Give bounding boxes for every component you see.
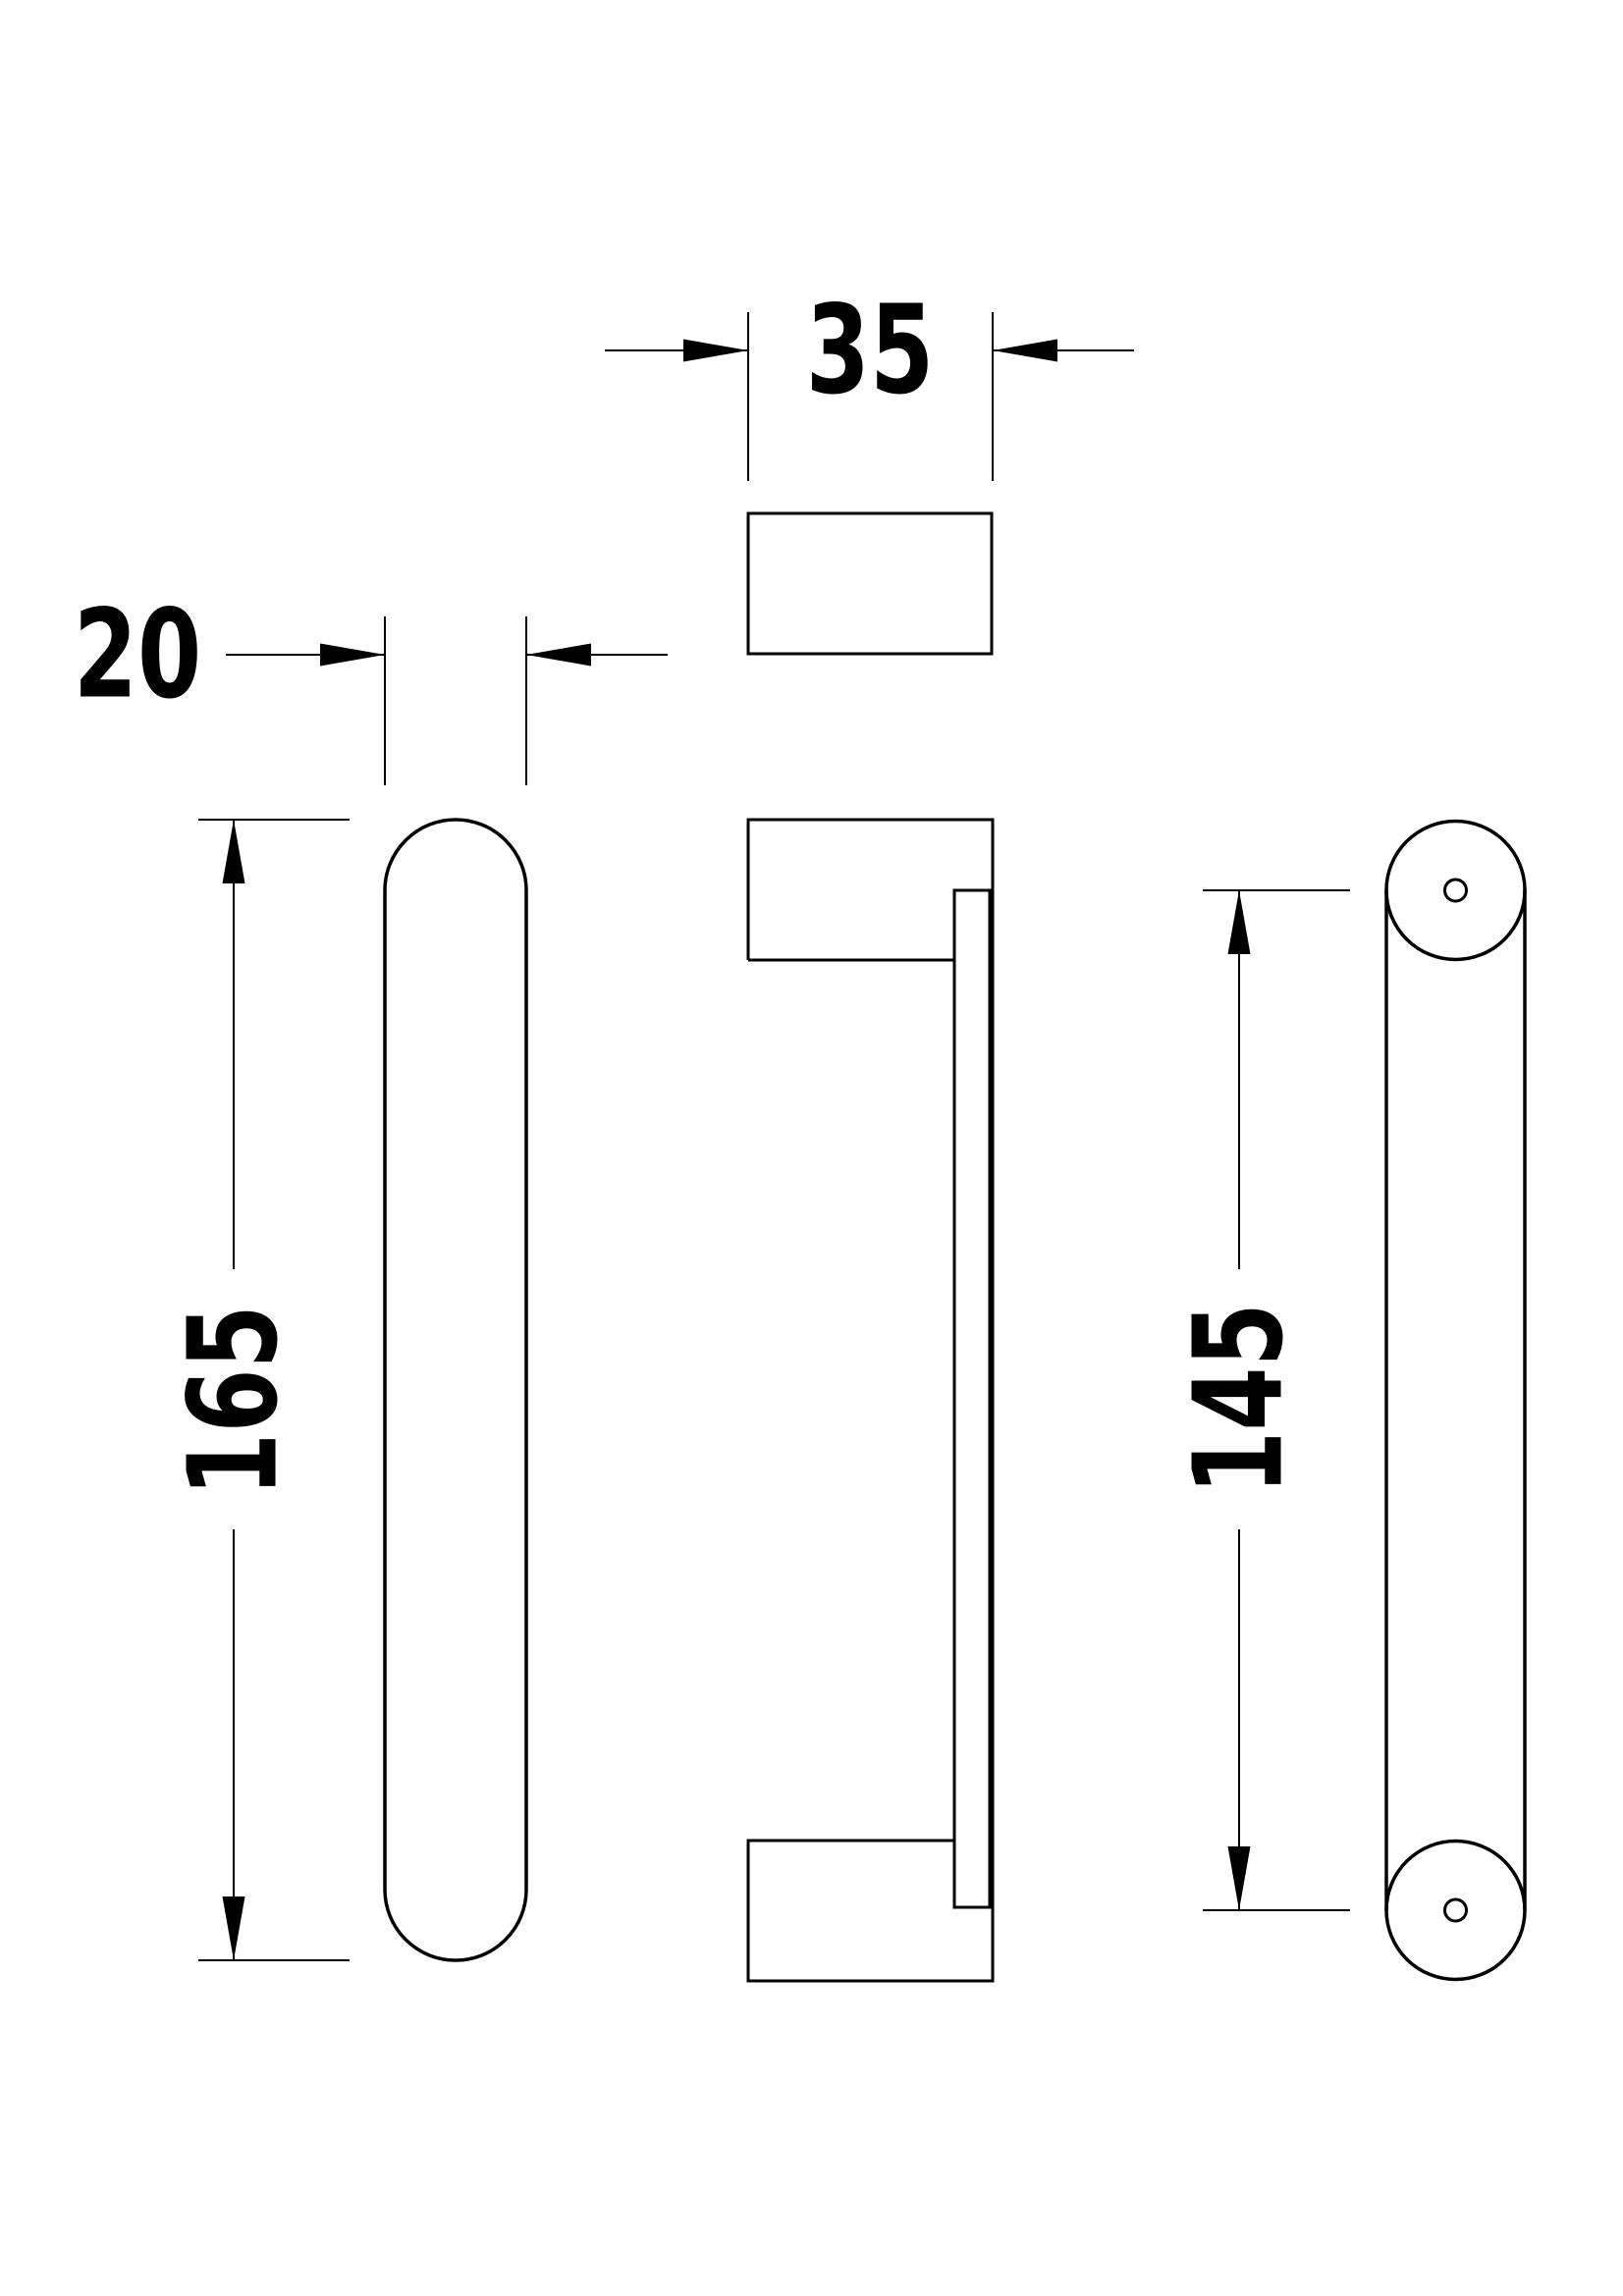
handle-technical-drawing: 35 20 165 bbox=[0, 0, 1623, 2296]
dim-20-arrowhead-left-icon bbox=[526, 644, 591, 667]
front-view-top-boss-circle bbox=[1386, 822, 1525, 960]
side-view bbox=[385, 820, 526, 1960]
dim-165-arrowhead-down-icon bbox=[223, 1896, 245, 1960]
front-view-top-screw-hole bbox=[1445, 880, 1467, 901]
top-view-foot-outline bbox=[748, 513, 992, 654]
dim-145-label: 145 bbox=[1167, 1303, 1311, 1495]
section-view-grip-bar bbox=[954, 890, 990, 1907]
dim-145-arrowhead-down-icon bbox=[1228, 1846, 1251, 1910]
dim-165-label: 165 bbox=[162, 1305, 305, 1497]
dim-35-arrowhead-right-icon bbox=[683, 340, 748, 362]
dim-20-label: 20 bbox=[74, 583, 201, 726]
dim-35-arrowhead-left-icon bbox=[993, 340, 1057, 362]
dim-35-label: 35 bbox=[806, 279, 934, 422]
dim-20-arrowhead-right-icon bbox=[320, 644, 385, 667]
technical-drawing-page: 35 20 165 bbox=[0, 0, 1623, 2296]
front-view-bottom-screw-hole bbox=[1445, 1899, 1467, 1921]
dimension-depth-20: 20 bbox=[74, 583, 668, 785]
top-view bbox=[748, 513, 992, 654]
side-view-grip-outline bbox=[385, 820, 526, 1960]
front-view-bottom-boss-circle bbox=[1386, 1842, 1525, 1980]
front-view bbox=[1386, 822, 1525, 1980]
dimension-length-165: 165 bbox=[162, 820, 350, 1960]
dimension-hole-spacing-145: 145 bbox=[1167, 890, 1350, 1910]
dim-145-arrowhead-up-icon bbox=[1228, 890, 1251, 954]
section-view bbox=[748, 820, 993, 1981]
dim-165-arrowhead-up-icon bbox=[223, 820, 245, 883]
dimension-width-35: 35 bbox=[605, 279, 1134, 481]
section-view-outer-outline bbox=[748, 820, 993, 1981]
